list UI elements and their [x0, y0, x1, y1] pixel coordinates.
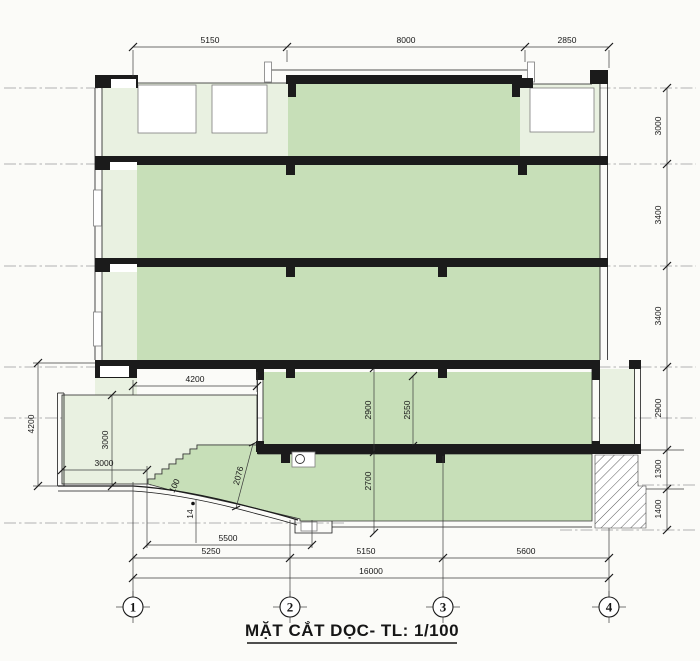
- dim-label: 3400: [653, 205, 663, 224]
- window-opening: [530, 88, 594, 132]
- section-drawing: 5150 8000 2850 3000 3400 3400 2900 1300 …: [0, 0, 700, 661]
- floor1-right-bay: [600, 369, 635, 452]
- column-stub: [286, 369, 295, 378]
- dim-label: 5500: [219, 533, 238, 543]
- dimensions-right: 3000 3400 3400 2900 1300 1400: [641, 84, 684, 534]
- grid-axis-label: 2: [287, 600, 294, 615]
- drawing-title-block: MẶT CẮT DỌC- TL: 1/100: [245, 621, 459, 643]
- floor1-room: [263, 372, 592, 452]
- grid-bubbles: 1 2 3 4: [116, 591, 626, 623]
- dim-label: 2850: [558, 35, 577, 45]
- column-stub: [436, 454, 445, 463]
- grid-bubble-2: 2: [273, 591, 307, 623]
- roof-slab: [286, 75, 522, 84]
- earth-hatch: [595, 455, 646, 528]
- floor3-room: [137, 165, 600, 258]
- dim-label: 3000: [95, 458, 114, 468]
- section-drawing-canvas: 5150 8000 2850 3000 3400 3400 2900 1300 …: [0, 0, 700, 661]
- floor2-left-strip: [102, 266, 137, 360]
- dimensions-top: 5150 8000 2850: [129, 35, 613, 77]
- dim-label: 2900: [363, 400, 373, 419]
- pipe-sleeve-icon: [296, 455, 305, 464]
- grid-axis-label: 1: [130, 600, 137, 615]
- column-stub: [286, 165, 295, 175]
- dim-label: 5600: [517, 546, 536, 556]
- roof-parapet-stub: [265, 62, 272, 82]
- grid-axis-label: 3: [440, 600, 447, 615]
- dim-label: 16000: [359, 566, 383, 576]
- floor3-slab: [95, 156, 608, 165]
- wall-window-slit: [94, 312, 102, 346]
- column-stub: [518, 165, 527, 175]
- dim-label: 5150: [201, 35, 220, 45]
- dim-label: 5250: [202, 546, 221, 556]
- dim-label: 14: [185, 509, 195, 519]
- column-stub: [438, 369, 447, 378]
- dim-label: 3000: [100, 430, 110, 449]
- drawing-title: MẶT CẮT DỌC- TL: 1/100: [245, 621, 459, 640]
- column-stub: [286, 267, 295, 277]
- grid-axis-label: 4: [606, 600, 613, 615]
- dim-label: 2700: [363, 471, 373, 490]
- dim-label: 1400: [653, 499, 663, 518]
- wall-window-slit: [94, 190, 102, 226]
- grid-bubble-3: 3: [426, 591, 460, 623]
- floor1-slab: [95, 360, 600, 369]
- grid-bubble-4: 4: [592, 591, 626, 623]
- column-stub: [281, 454, 290, 463]
- dim-label: 4200: [186, 374, 205, 384]
- dim-label: 1300: [653, 459, 663, 478]
- column-stub: [438, 267, 447, 277]
- dim-label: 4200: [26, 414, 36, 433]
- floor2-room: [137, 266, 600, 360]
- dim-label: 8000: [397, 35, 416, 45]
- roof-floor-middle-room: [288, 84, 520, 156]
- slope-point-marker: [191, 502, 195, 506]
- grid-bubble-1: 1: [116, 591, 150, 623]
- window-opening: [212, 85, 267, 133]
- dim-label: 3400: [653, 306, 663, 325]
- dim-label: 5150: [357, 546, 376, 556]
- window-opening: [138, 85, 196, 133]
- dim-label: 2900: [653, 398, 663, 417]
- parapet-under-strip: [95, 378, 137, 395]
- floor3-left-strip: [102, 165, 137, 258]
- drain-channel: [301, 522, 317, 531]
- dim-label: 3000: [653, 116, 663, 135]
- floor2-slab: [95, 258, 608, 267]
- dim-label: 2550: [402, 400, 412, 419]
